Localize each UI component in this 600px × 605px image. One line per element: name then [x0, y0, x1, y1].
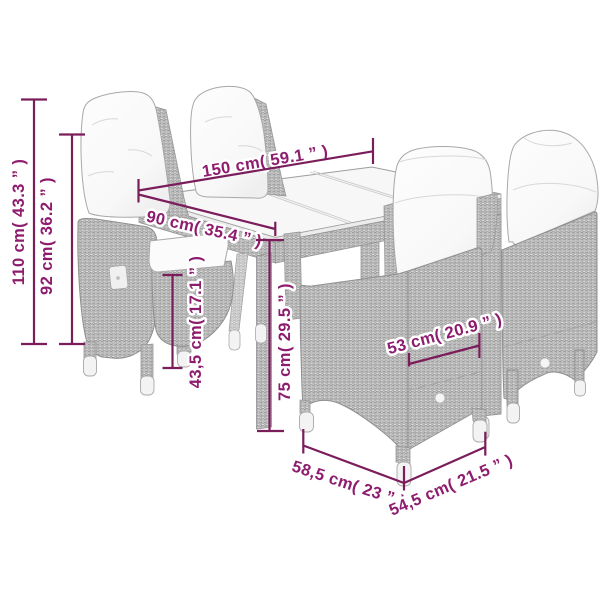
- svg-text:43,5 cm( 17.1 ” ): 43,5 cm( 17.1 ” ): [187, 256, 205, 388]
- svg-text:75 cm( 29.5 ” ): 75 cm( 29.5 ” ): [276, 283, 294, 401]
- svg-text:110 cm( 43.3 ” ): 110 cm( 43.3 ” ): [10, 159, 28, 286]
- svg-text:92 cm( 36.2 ” ): 92 cm( 36.2 ” ): [38, 177, 56, 295]
